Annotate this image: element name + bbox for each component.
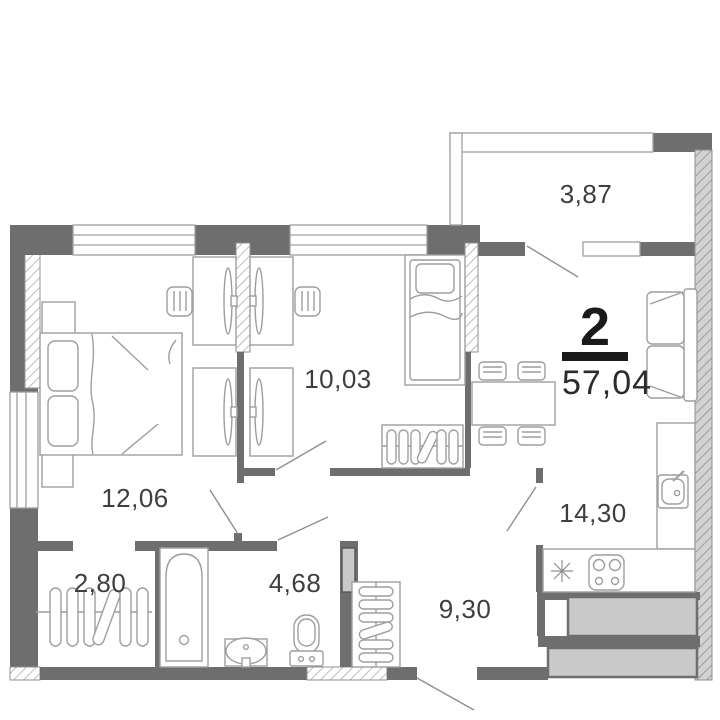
- label-bathroom-area: 4,68: [269, 568, 322, 598]
- door-bedroom: [210, 490, 238, 534]
- kitchen-sink-icon: [658, 471, 688, 508]
- label-children-area: 10,03: [304, 364, 372, 394]
- dining-table-icon: [472, 382, 555, 425]
- wall-left-lower: [10, 508, 38, 680]
- single-bed-icon: [405, 255, 465, 385]
- hall-wardrobe-icon: [352, 582, 400, 667]
- label-kitchen-area: 14,30: [559, 498, 627, 528]
- label-hallway-area: 9,30: [439, 594, 492, 624]
- wall-hall-kitchen-upper: [536, 468, 543, 483]
- window-bedroom-top: [73, 225, 195, 255]
- wall-partition-desks: [236, 243, 250, 352]
- shaft-box-lower: [548, 648, 697, 677]
- wall-bedroom-children: [237, 352, 244, 483]
- wall-bottom-3: [477, 667, 548, 680]
- wall-corridor-top-stub: [244, 468, 275, 476]
- sofa-icon: [647, 289, 697, 401]
- asterisk-icon: [551, 560, 573, 582]
- bathtub-icon: [160, 548, 208, 667]
- wall-kitchen-stub: [537, 592, 545, 636]
- wall-bottom-hatch-mid: [307, 667, 387, 680]
- label-balcony-area: 3,87: [560, 179, 613, 209]
- wall-hall-kitchen-lower: [536, 545, 543, 592]
- window-children-top: [290, 225, 427, 255]
- summary-badge: 2 57,04: [562, 297, 652, 402]
- label-closet-area: 2,80: [74, 568, 127, 598]
- wardrobe-icon: [382, 425, 463, 468]
- opening-kitchen: [507, 487, 536, 531]
- label-bedroom-area: 12,06: [101, 483, 169, 513]
- wall-children-kitchen-hatch: [465, 243, 478, 352]
- door-balcony: [527, 246, 578, 277]
- wall-left-hatch: [25, 243, 40, 388]
- balcony-railing: [450, 133, 653, 225]
- summary-divider: [562, 352, 628, 361]
- wall-children-kitchen: [465, 352, 471, 468]
- wall-bottom-1: [40, 667, 307, 680]
- wall-corridor-top: [330, 468, 470, 476]
- wall-closet-top-left: [30, 541, 73, 551]
- bathroom-sink-icon: [225, 638, 267, 667]
- wall-balcony-stub: [480, 242, 525, 256]
- door-entrance: [417, 678, 474, 710]
- total-area: 57,04: [562, 364, 652, 402]
- rooms-count: 2: [580, 297, 610, 357]
- wall-step: [538, 636, 700, 647]
- floor-plan: 3,87 10,03 12,06 2,80 4,68 9,30 14,30 2 …: [0, 0, 720, 720]
- wall-top-pier-1: [10, 225, 73, 255]
- window-balcony-block: [583, 242, 640, 256]
- double-bed-icon: [40, 302, 182, 487]
- door-bathroom: [278, 517, 328, 540]
- toilet-icon: [290, 615, 323, 666]
- floor-plan-canvas: 3,87 10,03 12,06 2,80 4,68 9,30 14,30 2 …: [0, 0, 720, 720]
- window-bedroom-left: [10, 392, 38, 508]
- wall-balcony-corner: [653, 133, 712, 152]
- wall-door-post: [234, 533, 242, 542]
- stove-icon: [589, 555, 624, 590]
- wall-balcony-right: [640, 242, 695, 256]
- shaft-box-upper: [568, 597, 697, 636]
- wall-bottom-hatch-left: [10, 667, 40, 680]
- wall-bottom-2: [387, 667, 417, 680]
